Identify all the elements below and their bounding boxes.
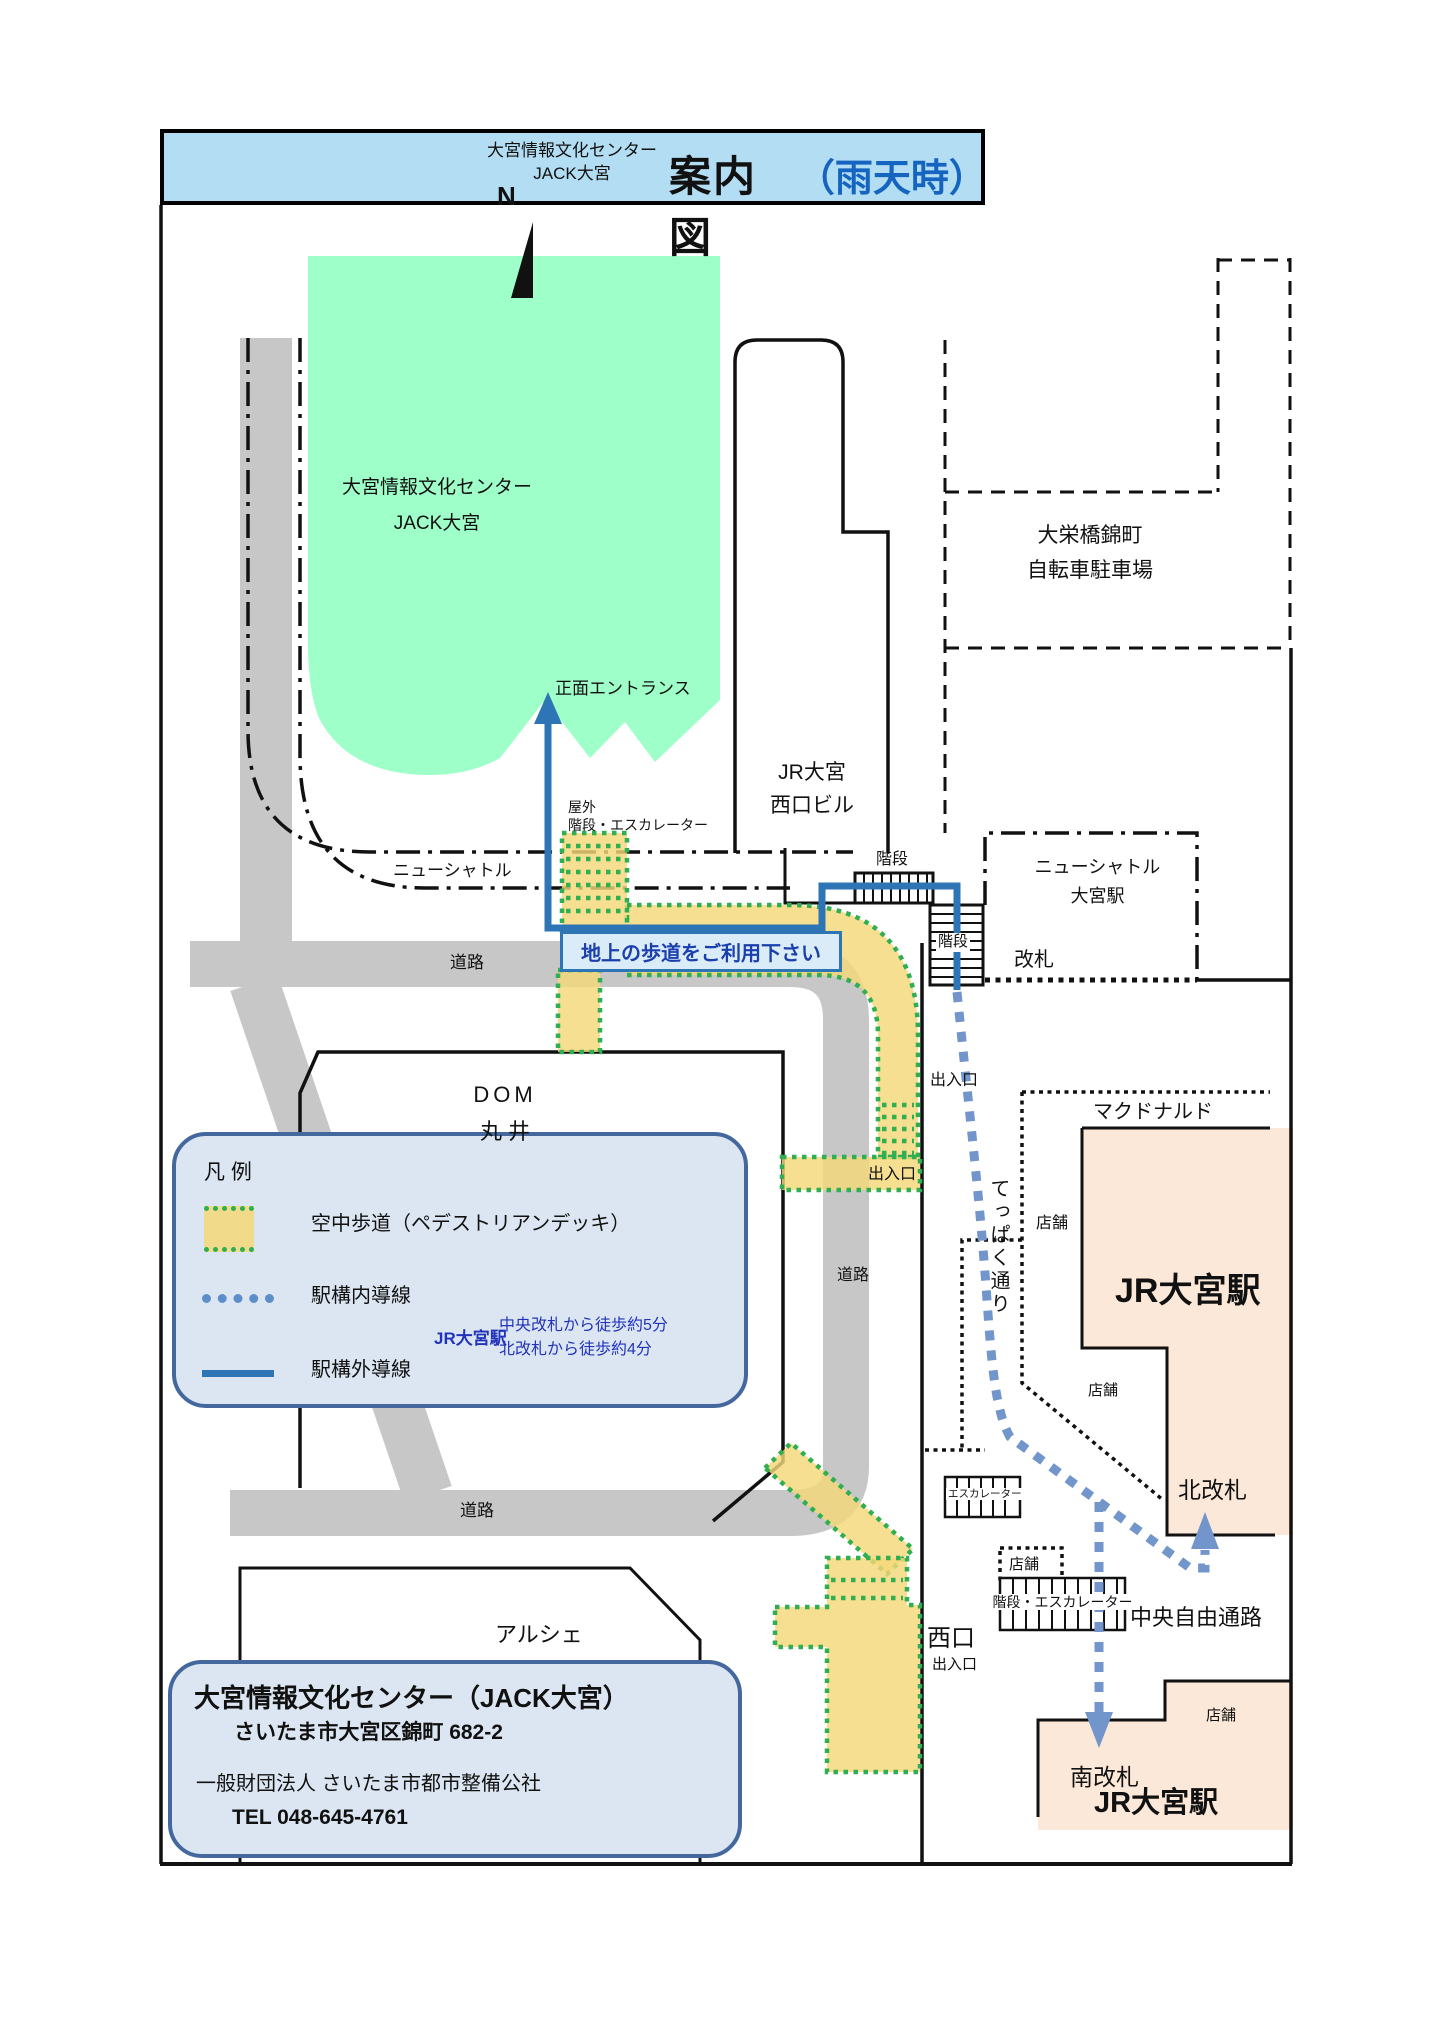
bicycle-parking-label: 大栄橋錦町 自転車駐車場 <box>975 518 1205 588</box>
exit-label-lower: 出入口 <box>868 1165 916 1185</box>
legend-solid-swatch <box>202 1370 274 1377</box>
legend-item-in-station: 駅構内導線 <box>311 1284 411 1309</box>
facility-address: さいたま市大宮区錦町 682-2 <box>234 1720 503 1746</box>
legend-dotted-swatch <box>202 1294 274 1303</box>
facility-info-box: 大宮情報文化センター（JACK大宮） さいたま市大宮区錦町 682-2 一般財団… <box>168 1660 742 1858</box>
stairs-top-label: 階段 <box>876 850 908 870</box>
shuttle-gate-label: 改札 <box>1014 948 1054 973</box>
walk-note-line1: 中央改札から徒歩約5分 <box>499 1316 668 1336</box>
stairs-side-label: 階段 <box>936 933 970 952</box>
shop-label-d: 店舗 <box>1206 1707 1236 1726</box>
jr-station-north-shape <box>1082 1128 1293 1535</box>
page-title: 案内図 <box>669 143 797 265</box>
header-org-name: 大宮情報文化センター JACK大宮 <box>437 140 707 186</box>
exit-label-upper: 出入口 <box>930 1071 978 1091</box>
facility-tel: TEL 048-645-4761 <box>232 1805 408 1831</box>
facility-name: 大宮情報文化センター（JACK大宮） <box>194 1682 629 1715</box>
stairs-escalator-label: 階段・エスカレーター <box>985 1594 1140 1612</box>
escalator-label: エスカレーター <box>946 1488 1019 1501</box>
teppaku-street-label: てっぱく通り <box>985 1178 1010 1363</box>
entrance-label: 正面エントランス <box>555 678 691 699</box>
north-gate-label: 北改札 <box>1178 1476 1247 1505</box>
legend-title: 凡 例 <box>204 1160 252 1186</box>
use-ground-walkway-notice: 地上の歩道をご利用下さい <box>560 931 842 972</box>
west-exit-sub-label: 出入口 <box>932 1656 977 1675</box>
walk-note-line2: 北改札から徒歩約4分 <box>499 1340 652 1360</box>
west-exit-bldg-label: JR大宮 西口ビル <box>732 756 892 822</box>
walk-note-station: JR大宮駅 <box>434 1328 507 1349</box>
facility-operator: 一般財団法人 さいたま市都市整備公社 <box>196 1772 541 1797</box>
west-exit-label: 西口 <box>927 1624 975 1654</box>
new-shuttle-track-label: ニューシャトル <box>393 860 512 881</box>
page-title-note: （雨天時） <box>797 147 981 202</box>
road-label-top: 道路 <box>450 952 484 973</box>
legend-item-outdoor: 駅構外導線 <box>311 1358 411 1383</box>
legend-box: 凡 例 空中歩道（ペデストリアンデッキ） 駅構内導線 JR大宮駅 中央改札から徒… <box>172 1132 748 1408</box>
guide-map-page: 大宮情報文化センター JACK大宮 案内図 （雨天時） N 大宮情報文化センター… <box>0 0 1443 2040</box>
outdoor-stairs-label: 屋外 階段・エスカレーター <box>568 798 708 834</box>
road-label-center: 道路 <box>837 1266 869 1286</box>
shop-label-a: 店舗 <box>1036 1214 1068 1234</box>
jack-building-label: 大宮情報文化センター JACK大宮 <box>317 470 557 542</box>
legend-deck-swatch <box>204 1206 254 1252</box>
jr-station-north-label: JR大宮駅 <box>1115 1270 1260 1313</box>
title-bar: 大宮情報文化センター JACK大宮 案内図 （雨天時） <box>160 129 985 205</box>
new-shuttle-station-label: ニューシャトル 大宮駅 <box>1025 853 1170 911</box>
north-label: N <box>497 180 516 213</box>
dom-label: DOM 丸 井 <box>405 1076 605 1150</box>
jr-station-south-label: JR大宮駅 <box>1094 1785 1218 1821</box>
legend-item-deck: 空中歩道（ペデストリアンデッキ） <box>311 1212 630 1237</box>
shop-label-c: 店舗 <box>1009 1556 1039 1575</box>
arche-label: アルシェ <box>495 1621 583 1649</box>
shop-label-b: 店舗 <box>1088 1382 1118 1401</box>
road-label-bottom: 道路 <box>460 1500 494 1521</box>
central-passage-label: 中央自由通路 <box>1130 1604 1262 1632</box>
mcdonalds-label: マクドナルド <box>1093 1100 1213 1125</box>
